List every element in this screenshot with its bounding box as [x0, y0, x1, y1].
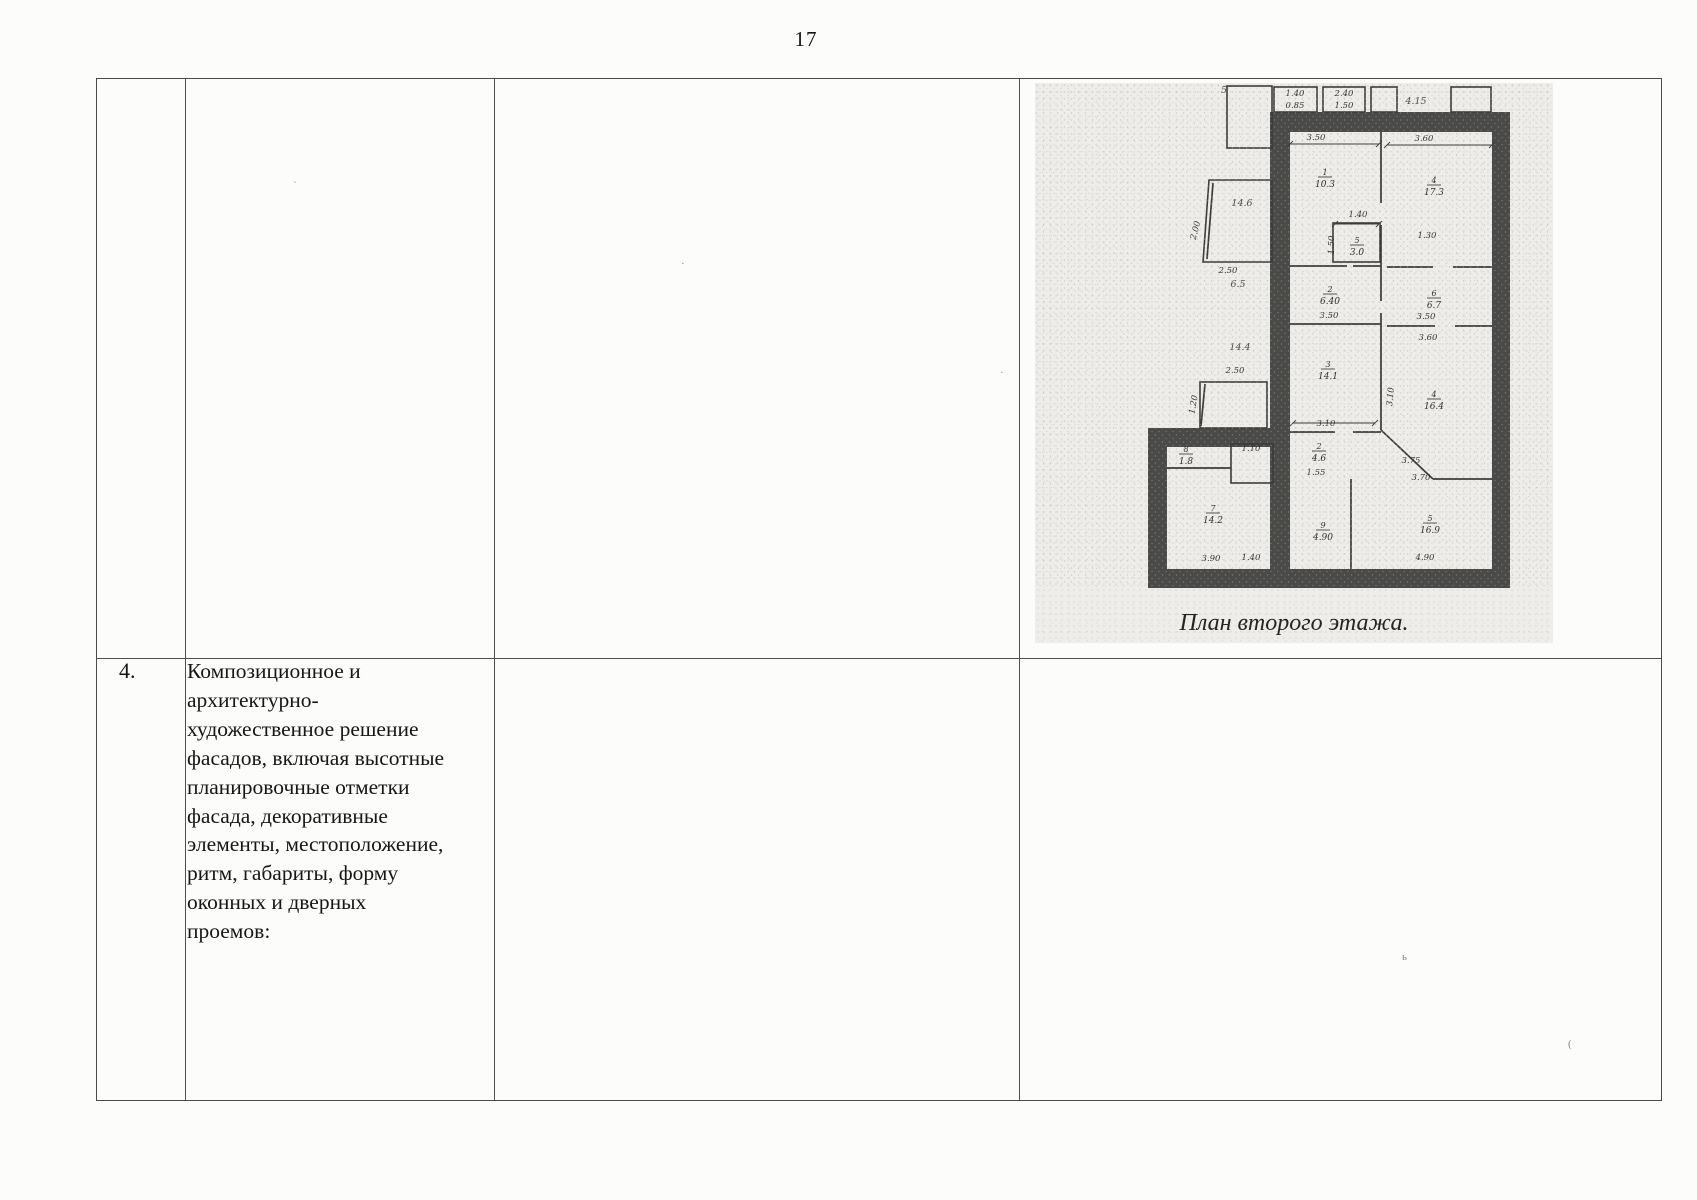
row4-description-cell: Композиционное и архитектурно- художеств…: [187, 657, 475, 946]
floor-plan-svg: 110.3417.353.026.4066.7314.1416.424.694.…: [1035, 83, 1553, 643]
scan-artifact: ·: [1000, 367, 1004, 379]
scan-artifact: `: [293, 180, 297, 192]
page-number: 17: [786, 27, 826, 52]
scan-artifact: ·: [681, 258, 685, 270]
table-grid-line-col2: [494, 79, 495, 1100]
row4-number-cell: 4.: [119, 658, 169, 684]
floor-plan-caption: План второго этажа.: [1035, 610, 1553, 637]
table-grid-line-col1: [185, 79, 186, 1100]
scan-artifact: ь: [1402, 951, 1407, 963]
table-grid-line-col3: [1019, 79, 1020, 1100]
floor-plan-figure: 110.3417.353.026.4066.7314.1416.424.694.…: [1035, 83, 1553, 643]
scan-artifact: (: [1568, 1038, 1572, 1050]
